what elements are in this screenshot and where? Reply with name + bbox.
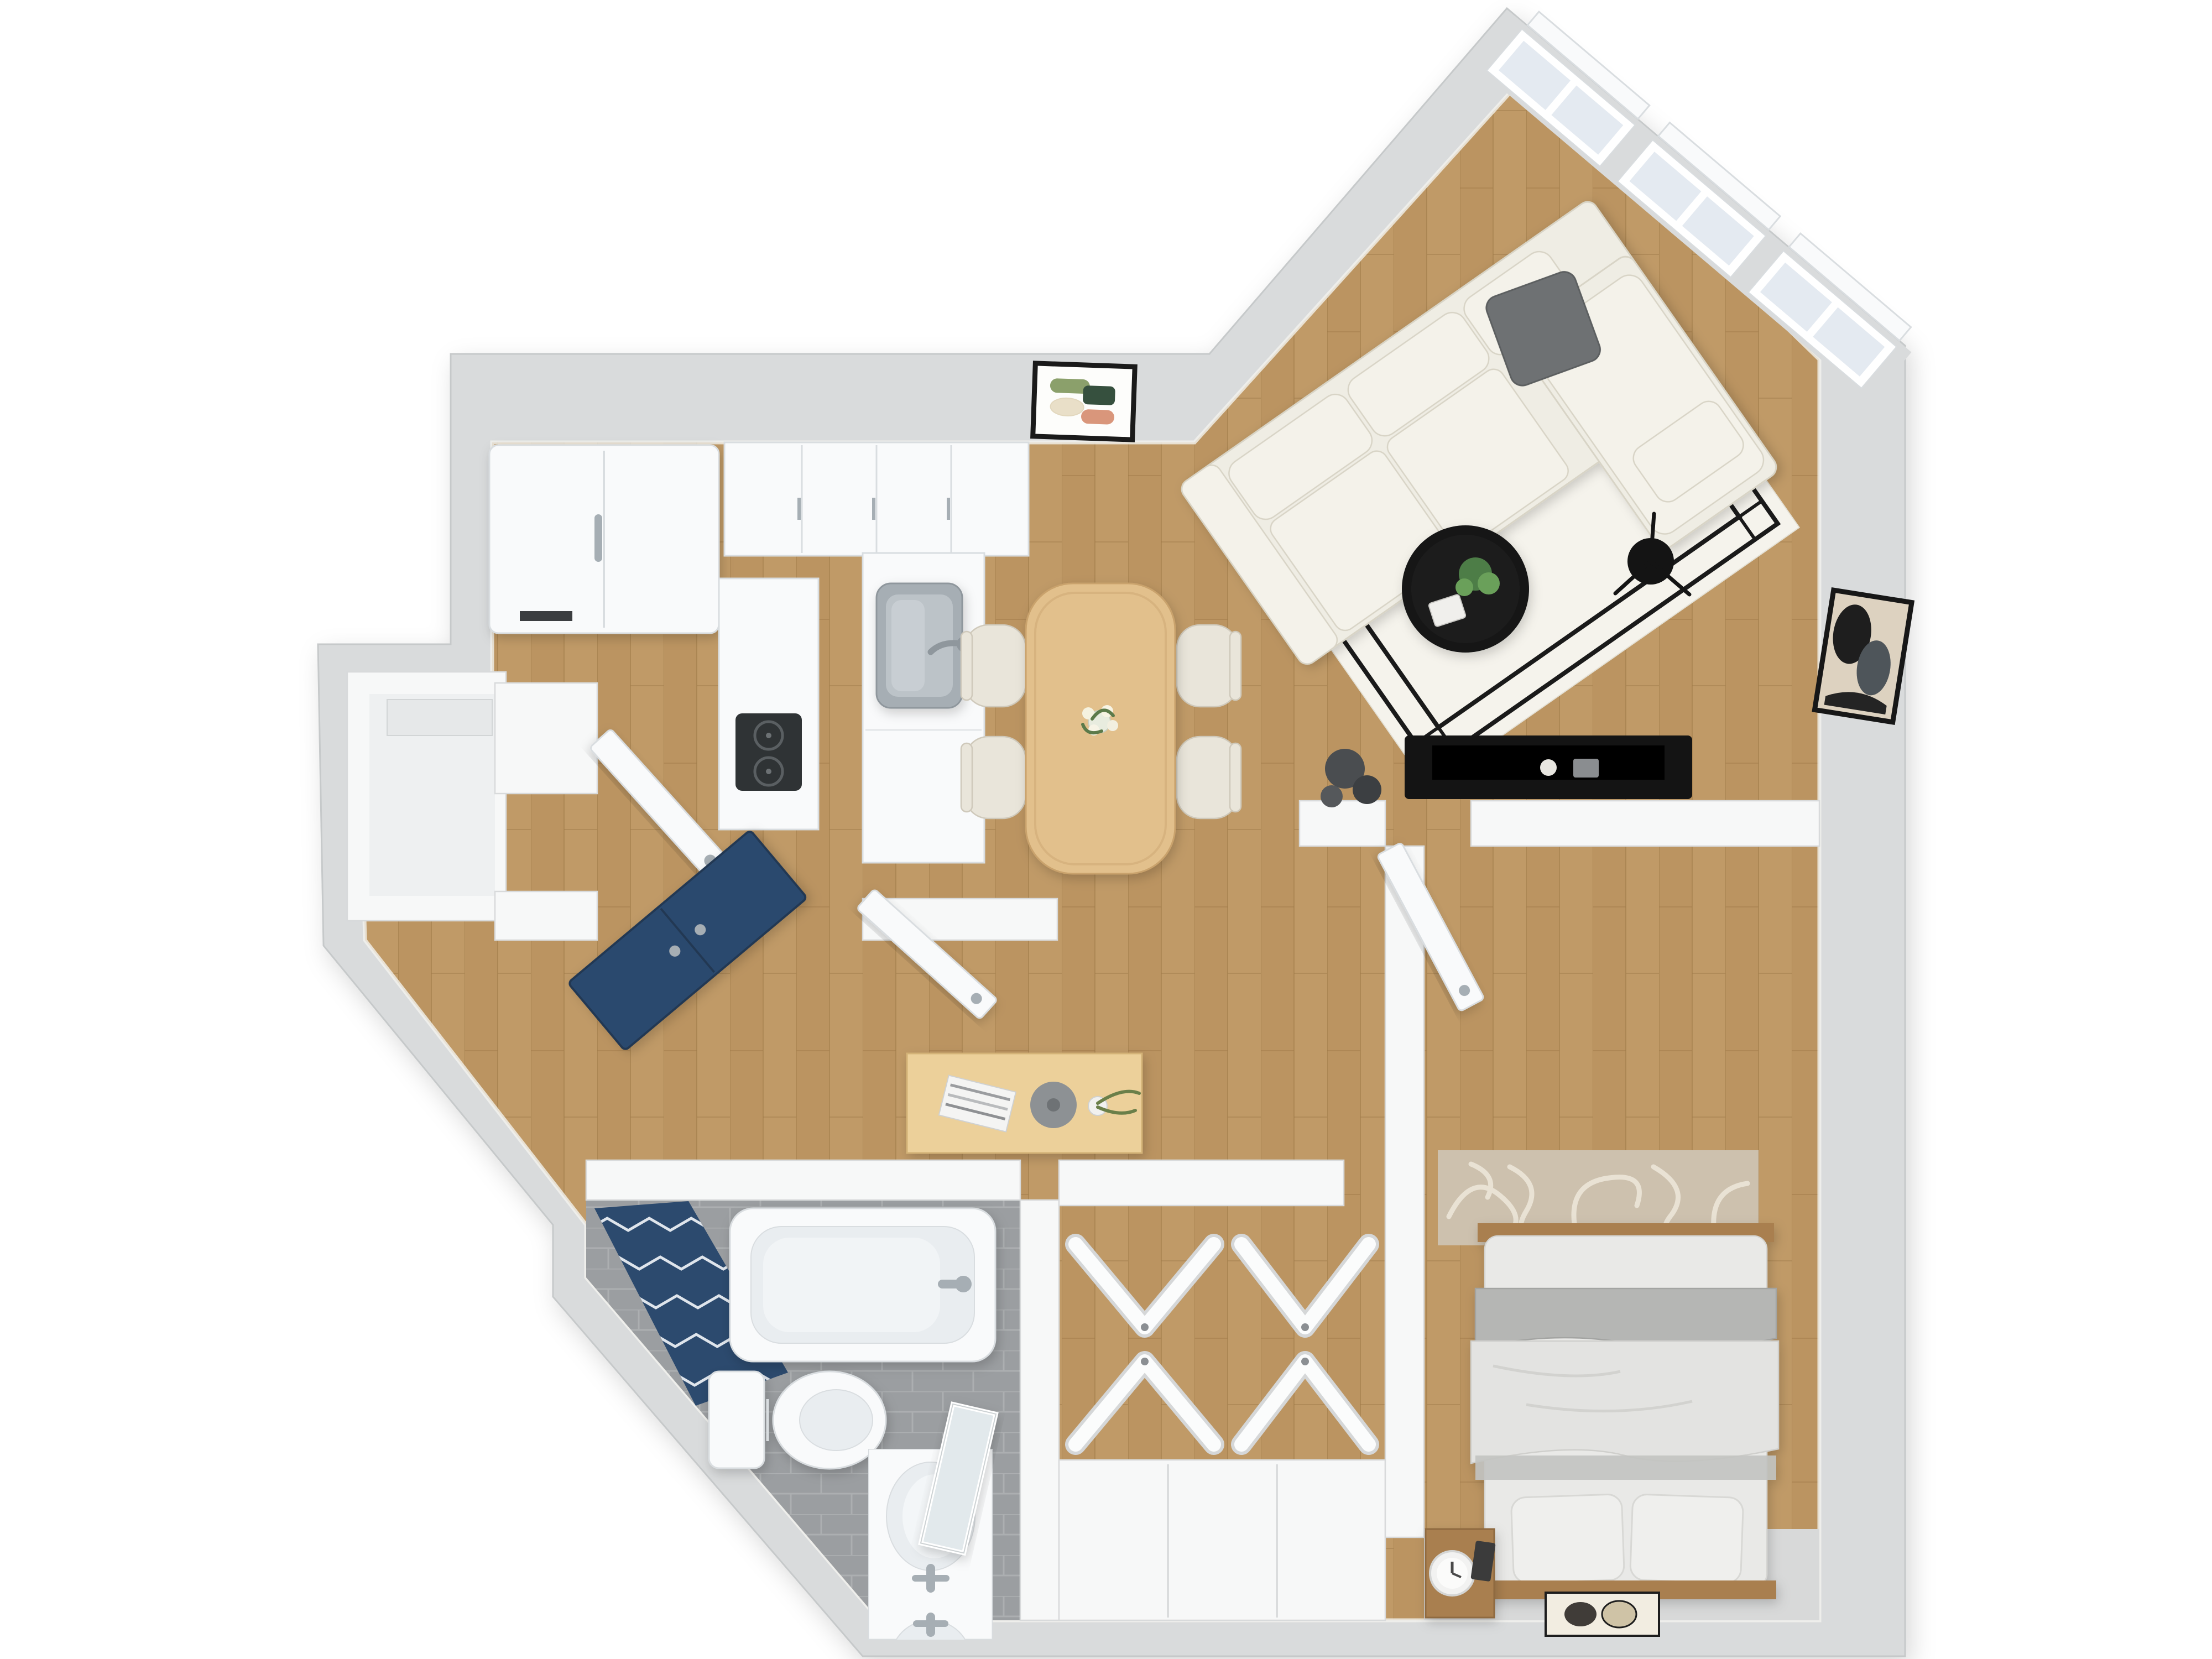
floor-plan-canvas (0, 0, 2212, 1659)
dining-chair (1177, 625, 1241, 707)
wardrobe-unit (1059, 1460, 1385, 1620)
double-bed (1471, 1223, 1778, 1599)
blanket-fold-edge (1475, 1455, 1776, 1480)
bathtub (730, 1208, 995, 1361)
niche-wall-upper (495, 683, 597, 794)
niche-shelf (387, 700, 492, 735)
dining-chair (1177, 737, 1241, 818)
refrigerator (489, 445, 719, 633)
console-decor-box (1573, 759, 1599, 778)
kitchen-sink (877, 583, 973, 708)
alarm-clock (1430, 1551, 1474, 1595)
bed-pillow (1511, 1494, 1624, 1584)
dining-chair (961, 625, 1026, 707)
dining-chair (961, 737, 1026, 818)
toilet (709, 1371, 886, 1469)
upper-cabinets (724, 442, 1029, 556)
bed-pillow (1630, 1494, 1743, 1584)
fridge-vent (520, 611, 572, 621)
niche-wall-lower (495, 891, 597, 940)
closet-left-wall (1020, 1200, 1059, 1620)
toilet-tank (709, 1371, 764, 1468)
nightstand (1426, 1529, 1496, 1618)
framed-abstract-art-dining (1033, 363, 1135, 440)
counter-left (719, 578, 818, 830)
console-decor-candle (1540, 759, 1557, 776)
bathroom-top-wall (586, 1160, 1020, 1200)
fridge-handle (594, 514, 602, 562)
bedroom-top-wall-stub (1300, 801, 1385, 846)
white-duvet (1471, 1341, 1778, 1463)
round-coffee-table (1402, 525, 1529, 653)
bedroom-left-wall (1385, 846, 1424, 1537)
bedroom-top-wall (1471, 801, 1819, 846)
hall-console-desk (907, 1053, 1142, 1153)
gray-blanket (1475, 1288, 1776, 1348)
floor-mat-two-ovals (1546, 1593, 1659, 1636)
cooktop (735, 713, 802, 791)
closet-top-wall (1059, 1160, 1344, 1206)
